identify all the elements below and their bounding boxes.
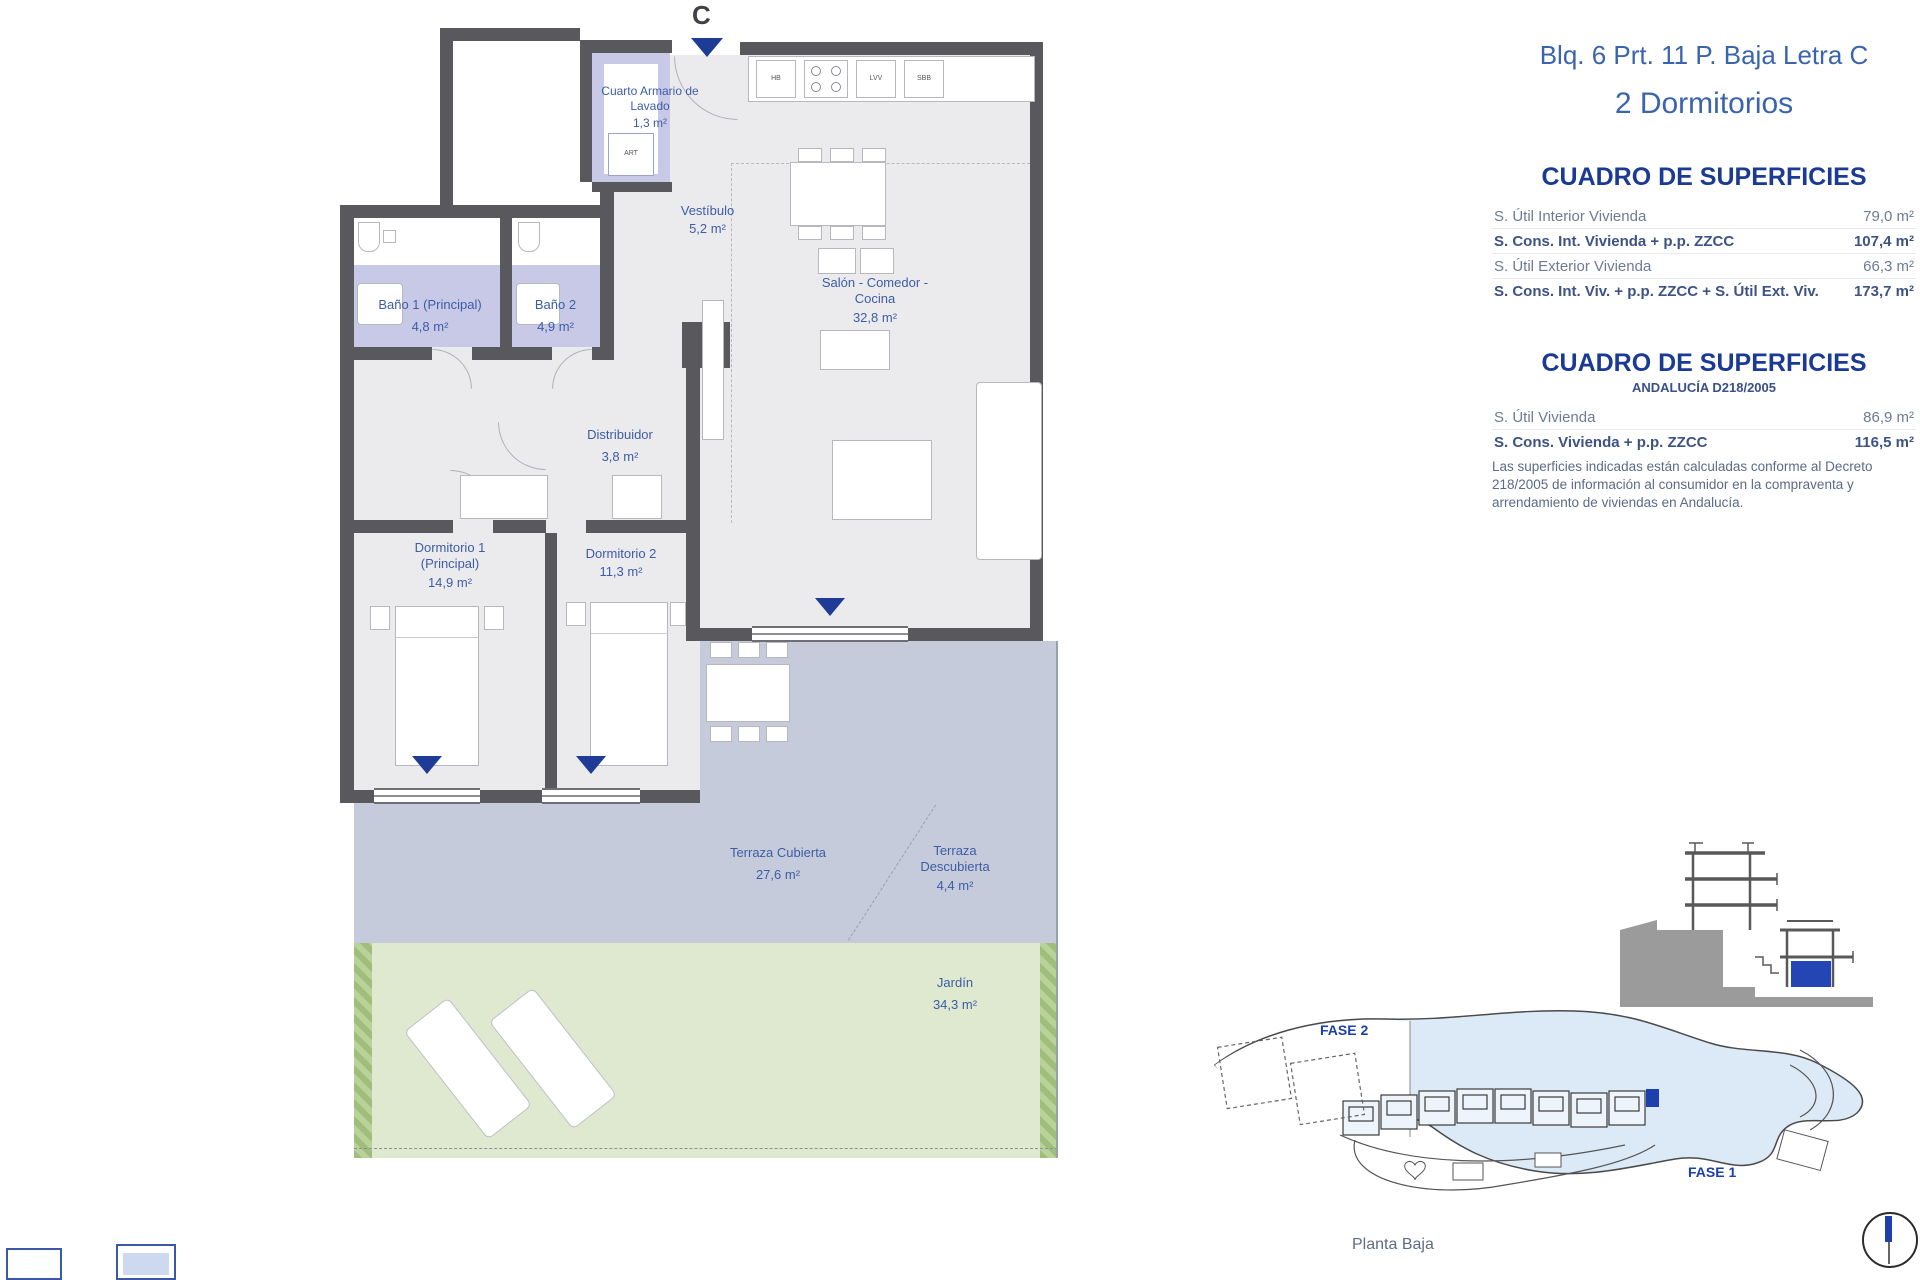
- room-area: 11,3 m²: [566, 564, 676, 580]
- table-row: S. Útil Vivienda 86,9 m²: [1492, 405, 1916, 430]
- room-label-bath2: Baño 2 4,9 m²: [508, 297, 603, 336]
- kitchen-island: [820, 330, 890, 370]
- room-area: 4,8 m²: [368, 319, 492, 335]
- room-name: Jardín: [905, 975, 1005, 991]
- surfaces-heading: CUADRO DE SUPERFICIES: [1492, 163, 1916, 192]
- wall: [340, 347, 432, 360]
- room-label-vestibulo: Vestíbulo 5,2 m²: [650, 203, 765, 238]
- room-label-dorm1: Dormitorio 1 (Principal) 14,9 m²: [395, 540, 505, 591]
- armchair: [818, 248, 856, 274]
- room-label-terraza-cubierta: Terraza Cubierta 27,6 m²: [713, 845, 843, 884]
- window-marker-icon: [412, 756, 442, 774]
- bedroom1-window: [374, 788, 480, 804]
- oven-label: SBB: [905, 75, 943, 82]
- garden-hedge-left: [354, 943, 372, 1158]
- outdoor-chair: [766, 726, 788, 742]
- room-label-jardin: Jardín 34,3 m²: [905, 975, 1005, 1014]
- wall: [440, 28, 580, 41]
- wall: [480, 790, 542, 803]
- table-row: S. Cons. Vivienda + p.p. ZZCC 116,5 m²: [1492, 430, 1916, 454]
- hob-label: HB: [757, 75, 795, 82]
- wall: [700, 628, 752, 641]
- room-area: 14,9 m²: [395, 575, 505, 591]
- room-name: Terraza Cubierta: [713, 845, 843, 861]
- room-label-bath1: Baño 1 (Principal) 4,8 m²: [368, 297, 492, 336]
- table-row: S. Útil Interior Vivienda 79,0 m²: [1492, 204, 1916, 229]
- room-name: Baño 1 (Principal): [368, 297, 492, 313]
- salon-window: [752, 626, 908, 642]
- bed-dorm2: [590, 602, 668, 766]
- outdoor-chair: [710, 642, 732, 658]
- table-row: S. Cons. Int. Vivienda + p.p. ZZCC 107,4…: [1492, 229, 1916, 254]
- building-section-diagram: [1615, 835, 1895, 1010]
- nightstand: [670, 602, 686, 626]
- pool-rect: [1535, 1153, 1561, 1167]
- room-name: Terraza Descubierta: [910, 843, 1000, 876]
- nightstand: [370, 606, 390, 630]
- room-area: 4,9 m²: [508, 319, 603, 335]
- wall: [472, 347, 552, 360]
- row-value: 66,3 m²: [1863, 258, 1914, 275]
- room-label-distribuidor: Distribuidor 3,8 m²: [562, 427, 678, 466]
- chair: [862, 148, 886, 162]
- room-label-laundry: Cuarto Armario de Lavado 1,3 m²: [585, 84, 715, 131]
- row-label: S. Cons. Int. Vivienda + p.p. ZZCC: [1494, 233, 1734, 250]
- chair: [862, 226, 886, 240]
- andalucia-subheading: ANDALUCÍA D218/2005: [1492, 380, 1916, 395]
- bed-dorm1: [395, 606, 479, 766]
- chair: [830, 148, 854, 162]
- wall: [440, 28, 453, 218]
- row-value: 173,7 m²: [1854, 283, 1914, 300]
- outdoor-chair: [738, 726, 760, 742]
- room-name: Dormitorio 1 (Principal): [395, 540, 505, 573]
- info-panel: Blq. 6 Prt. 11 P. Baja Letra C 2 Dormito…: [1492, 40, 1916, 511]
- wall: [586, 520, 686, 533]
- legend-box: [116, 1244, 176, 1280]
- wall: [340, 205, 614, 218]
- oven-appliance: SBB: [904, 60, 944, 98]
- pool-rect: [1453, 1163, 1483, 1180]
- row-label: S. Cons. Vivienda + p.p. ZZCC: [1494, 434, 1708, 451]
- outdoor-table: [706, 664, 790, 722]
- unit-title: Blq. 6 Prt. 11 P. Baja Letra C: [1492, 40, 1916, 71]
- room-label-terraza-descubierta: Terraza Descubierta 4,4 m²: [910, 843, 1000, 894]
- wardrobe: [460, 475, 548, 519]
- toilet: [518, 222, 540, 252]
- pool-shape: [1405, 1161, 1426, 1180]
- nightstand: [484, 606, 504, 630]
- row-label: S. Útil Exterior Vivienda: [1494, 258, 1651, 275]
- unit-location-highlight: [1791, 961, 1831, 987]
- chair: [830, 226, 854, 240]
- room-area: 32,8 m²: [805, 310, 945, 326]
- garden-boundary-dashed: [354, 1148, 1058, 1149]
- room-name: Cuarto Armario de Lavado: [585, 84, 715, 114]
- closet-box: [383, 230, 396, 243]
- wall: [908, 628, 1043, 641]
- room-label-salon: Salón - Comedor - Cocina 32,8 m²: [805, 275, 945, 326]
- wall: [545, 533, 557, 790]
- room-name: Distribuidor: [562, 427, 678, 443]
- floor-plan: ART: [0, 0, 1100, 1280]
- room-name: Vestíbulo: [650, 203, 765, 219]
- plant-caption: Planta Baja: [1352, 1236, 1434, 1254]
- tv-unit: [702, 300, 724, 440]
- unit-marker: [1646, 1089, 1659, 1107]
- room-area: 4,4 m²: [910, 878, 1000, 894]
- wardrobe: [612, 475, 662, 519]
- entrance-arrow-icon: [691, 38, 723, 57]
- nightstand: [566, 602, 586, 626]
- room-name: Baño 2: [508, 297, 603, 313]
- north-compass-icon: [1862, 1212, 1918, 1268]
- row-label: S. Útil Vivienda: [1494, 409, 1595, 426]
- wall: [640, 790, 700, 803]
- chair: [798, 148, 822, 162]
- row-label: S. Útil Interior Vivienda: [1494, 208, 1646, 225]
- plot-right-line: [1056, 641, 1058, 1158]
- fase1-label: FASE 1: [1688, 1164, 1736, 1180]
- row-value: 107,4 m²: [1854, 233, 1914, 250]
- site-plan: FASE 2 FASE 1: [1205, 1005, 1920, 1250]
- washer-label: ART: [609, 150, 653, 157]
- hob-appliance: HB: [756, 60, 796, 98]
- dining-table: [790, 162, 886, 226]
- room-area: 3,8 m²: [562, 449, 678, 465]
- stove-icon: [804, 60, 848, 98]
- armchair: [860, 248, 894, 274]
- table-row: S. Útil Exterior Vivienda 66,3 m²: [1492, 254, 1916, 279]
- window-marker-icon: [815, 598, 845, 616]
- legal-note: Las superficies indicadas están calculad…: [1492, 458, 1916, 511]
- room-area: 27,6 m²: [713, 867, 843, 883]
- room-area: 34,3 m²: [905, 997, 1005, 1013]
- row-label: S. Cons. Int. Viv. + p.p. ZZCC + S. Útil…: [1494, 283, 1819, 300]
- room-name: Salón - Comedor - Cocina: [805, 275, 945, 308]
- room-area: 1,3 m²: [585, 116, 715, 131]
- outdoor-chair: [738, 642, 760, 658]
- window-marker-icon: [576, 756, 606, 774]
- wall: [686, 360, 700, 641]
- unit-subtitle: 2 Dormitorios: [1492, 87, 1916, 121]
- wall: [740, 42, 1043, 55]
- dishwasher-appliance: LVV: [856, 60, 896, 98]
- wall: [340, 205, 354, 803]
- fase2-label: FASE 2: [1320, 1022, 1368, 1038]
- wall: [340, 790, 374, 803]
- surfaces-table: S. Útil Interior Vivienda 79,0 m² S. Con…: [1492, 204, 1916, 303]
- dishwasher-label: LVV: [857, 75, 895, 82]
- room-label-dorm2: Dormitorio 2 11,3 m²: [566, 546, 676, 581]
- table-row: S. Cons. Int. Viv. + p.p. ZZCC + S. Útil…: [1492, 279, 1916, 303]
- bedroom2-window: [542, 788, 640, 804]
- outdoor-chair: [710, 726, 732, 742]
- toilet: [358, 222, 380, 252]
- row-value: 116,5 m²: [1855, 434, 1914, 451]
- washing-machine: ART: [608, 133, 654, 176]
- floorplan-sheet: ART: [0, 0, 1920, 1280]
- andalucia-heading: CUADRO DE SUPERFICIES: [1492, 349, 1916, 378]
- coffee-table: [832, 440, 932, 520]
- sofa: [976, 382, 1042, 560]
- row-value: 79,0 m²: [1863, 208, 1914, 225]
- outdoor-chair: [766, 642, 788, 658]
- wall: [592, 347, 614, 360]
- room-area: 5,2 m²: [650, 221, 765, 237]
- andalucia-table: S. Útil Vivienda 86,9 m² S. Cons. Vivien…: [1492, 405, 1916, 454]
- wall: [493, 520, 546, 533]
- wall: [500, 218, 512, 360]
- block-letter: C: [692, 0, 711, 31]
- wall: [580, 40, 672, 53]
- wall: [340, 520, 453, 533]
- room-name: Dormitorio 2: [566, 546, 676, 562]
- legend-box: [6, 1248, 62, 1280]
- chair: [798, 226, 822, 240]
- row-value: 86,9 m²: [1863, 409, 1914, 426]
